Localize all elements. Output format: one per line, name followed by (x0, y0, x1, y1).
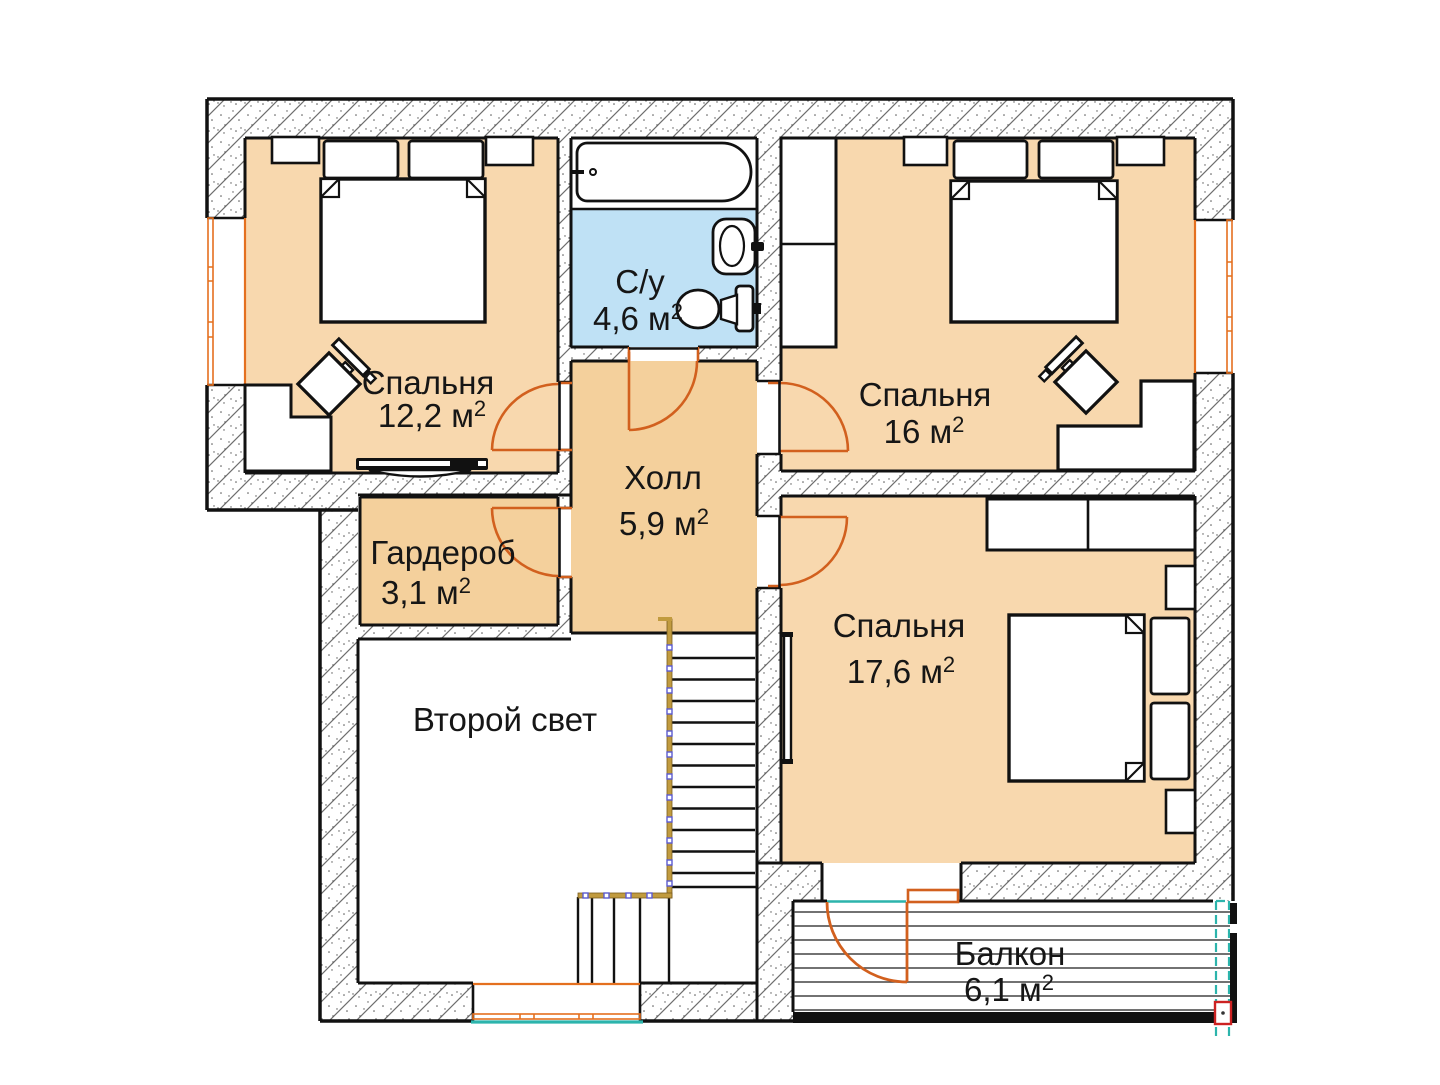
svg-text:4,6 м2: 4,6 м2 (593, 299, 683, 337)
svg-text:17,6 м2: 17,6 м2 (847, 652, 955, 690)
svg-text:Холл: Холл (624, 459, 702, 496)
svg-text:Второй свет: Второй свет (413, 701, 597, 738)
svg-text:Спальня: Спальня (833, 607, 966, 644)
svg-text:12,2 м2: 12,2 м2 (378, 396, 486, 434)
svg-text:С/у: С/у (615, 263, 665, 300)
svg-text:Гардероб: Гардероб (370, 534, 515, 571)
svg-text:Спальня: Спальня (859, 376, 992, 413)
svg-text:5,9 м2: 5,9 м2 (619, 504, 709, 542)
svg-text:6,1 м2: 6,1 м2 (964, 970, 1054, 1008)
svg-text:Балкон: Балкон (955, 935, 1066, 972)
svg-text:3,1 м2: 3,1 м2 (381, 573, 471, 611)
